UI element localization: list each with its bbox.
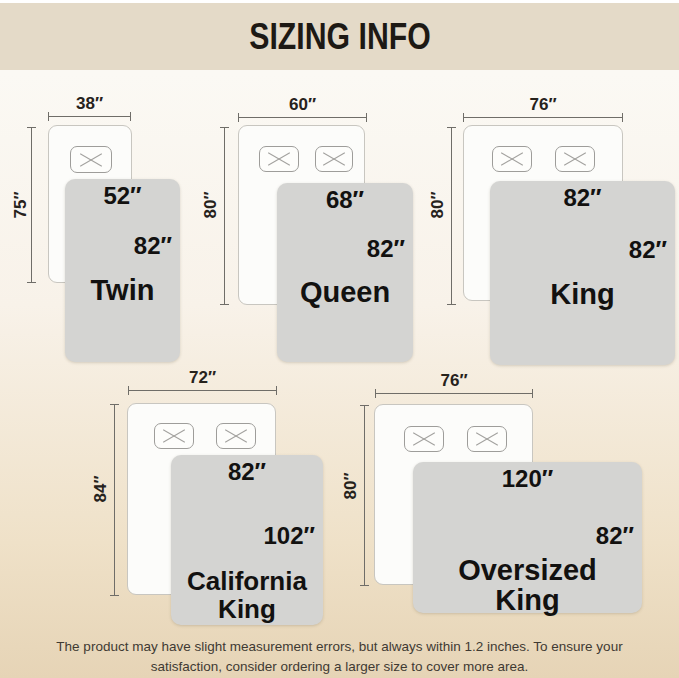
bed-width-dimension-line — [48, 116, 131, 117]
blanket: 82″ 102″ CaliforniaKing — [171, 455, 323, 625]
blanket-length-label: 82″ — [629, 236, 667, 264]
size-name-line1: Queen — [277, 278, 413, 308]
pillow-icon — [315, 146, 353, 172]
bed-length-dimension-line — [451, 127, 452, 305]
bed-length-dimension-line — [31, 127, 32, 283]
bed-length-label: 80″ — [341, 472, 361, 499]
size-name-line1: King — [490, 280, 675, 310]
disclaimer-line1: The product may have slight measurement … — [0, 637, 679, 657]
size-name-line2: King — [413, 586, 642, 616]
blanket-width-label: 120″ — [413, 465, 642, 493]
bed-length-dimension-line — [224, 127, 225, 305]
pillow-icon — [70, 146, 112, 173]
bed-width-dimension-line — [375, 393, 533, 394]
bed-width-dimension-line — [463, 117, 623, 118]
size-name-line1: Oversized — [413, 556, 642, 586]
blanket-width-label: 82″ — [171, 458, 323, 486]
size-name: Queen — [277, 278, 413, 308]
blanket-length-label: 82″ — [367, 235, 405, 263]
blanket: 68″ 82″ Queen — [277, 183, 413, 362]
bed-length-label: 75″ — [11, 191, 31, 218]
pillow-icon — [492, 146, 532, 172]
pillow-icon — [467, 426, 507, 452]
header-bar: SIZING INFO — [0, 0, 679, 70]
bed-width-label: 60″ — [238, 95, 367, 115]
blanket-width-label: 82″ — [490, 184, 675, 212]
pillow-icon — [404, 426, 444, 452]
bed-width-dimension-line — [238, 117, 367, 118]
pillow-icon — [154, 423, 194, 449]
blanket: 52″ 82″ Twin — [65, 179, 180, 362]
bed-length-dimension-line — [114, 404, 115, 596]
bed-width-label: 76″ — [463, 95, 623, 115]
blanket-length-label: 102″ — [263, 522, 315, 550]
bed-width-label: 38″ — [48, 94, 131, 114]
bed-length-dimension-line — [364, 405, 365, 586]
size-name: Twin — [65, 276, 180, 306]
blanket-width-label: 68″ — [277, 186, 413, 214]
bed-length-label: 84″ — [91, 475, 111, 502]
disclaimer-line2: satisfaction, consider ordering a larger… — [0, 657, 679, 677]
page-title: SIZING INFO — [249, 16, 430, 58]
size-name-line1: California — [171, 567, 323, 595]
size-name: CaliforniaKing — [171, 567, 323, 623]
disclaimer-text: The product may have slight measurement … — [0, 637, 679, 678]
blanket-length-label: 82″ — [596, 522, 634, 550]
bed-width-label: 76″ — [375, 371, 533, 391]
size-name: OversizedKing — [413, 556, 642, 616]
blanket-width-label: 52″ — [65, 182, 180, 210]
bed-length-label: 80″ — [201, 191, 221, 218]
size-name: King — [490, 280, 675, 310]
pillow-icon — [259, 146, 299, 172]
blanket: 120″ 82″ OversizedKing — [413, 462, 642, 613]
size-name-line2: King — [171, 595, 323, 623]
bed-width-dimension-line — [128, 390, 277, 391]
pillow-icon — [555, 146, 595, 172]
sizing-info-infographic: SIZING INFO 38″ 75″ 52″ 82″ Twin 60″ 80″… — [0, 0, 679, 678]
bed-width-label: 72″ — [128, 368, 277, 388]
pillow-icon — [216, 423, 256, 449]
size-name-line1: Twin — [65, 276, 180, 306]
blanket: 82″ 82″ King — [490, 181, 675, 365]
bed-length-label: 80″ — [428, 191, 448, 218]
blanket-length-label: 82″ — [134, 232, 172, 260]
